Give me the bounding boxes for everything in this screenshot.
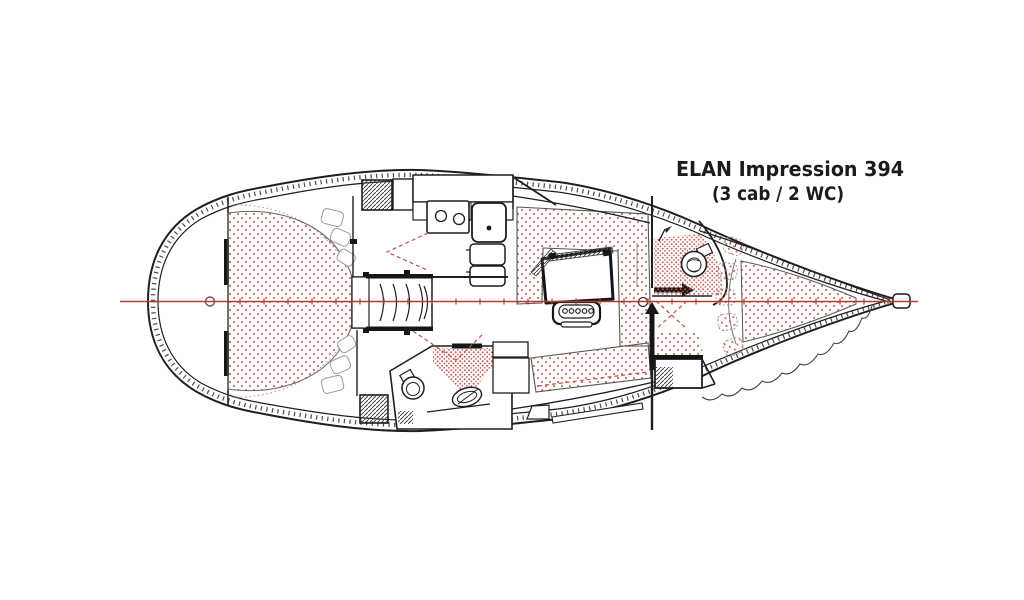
door-bar xyxy=(452,344,482,349)
toilet-bowl xyxy=(682,252,707,277)
hanging-locker-bottom xyxy=(360,395,388,423)
step-edge-top xyxy=(366,274,433,279)
vanity-locker-hatched xyxy=(656,367,673,387)
title-block: ELAN Impression 394 (3 cab / 2 WC) xyxy=(676,157,904,205)
fridge xyxy=(470,244,505,265)
end-table-top xyxy=(493,342,528,357)
boat-model-title: ELAN Impression 394 xyxy=(676,157,904,181)
table-bracket xyxy=(603,249,611,256)
galley-top-counter xyxy=(413,175,513,202)
hinge-nub xyxy=(363,272,369,277)
end-table xyxy=(493,358,529,393)
sink-basin xyxy=(454,214,465,225)
boat-layout-subtitle: (3 cab / 2 WC) xyxy=(712,183,844,205)
boat-layout-page: ELAN Impression 394 (3 cab / 2 WC) xyxy=(0,0,1024,600)
deck-locker xyxy=(393,179,413,210)
cabin-door-bar xyxy=(650,310,655,370)
floor-hatch xyxy=(398,411,413,424)
step-edge-bottom xyxy=(366,327,433,332)
corridor-stipple xyxy=(654,332,703,356)
stove xyxy=(472,203,506,242)
bottle-rack-base xyxy=(561,322,592,327)
vanity-top-bar xyxy=(653,355,703,359)
hinge-nub xyxy=(363,328,369,333)
hanging-locker-top xyxy=(362,180,392,210)
table-bracket xyxy=(549,252,557,259)
sink-basin xyxy=(436,211,447,222)
companionway xyxy=(352,270,433,335)
hinge-nub xyxy=(404,330,410,335)
door-latch xyxy=(350,239,357,244)
stove-knob xyxy=(487,226,492,231)
boat-floor-plan: ELAN Impression 394 (3 cab / 2 WC) xyxy=(0,0,1024,600)
hinge-nub xyxy=(404,270,410,275)
vanity-side-edge xyxy=(702,384,715,388)
